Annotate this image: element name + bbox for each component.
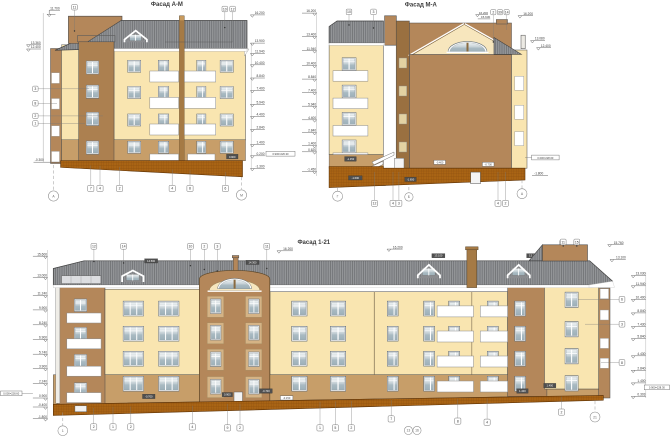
svg-text:0.000=228.60: 0.000=228.60: [537, 156, 553, 160]
svg-text:15: 15: [575, 240, 579, 244]
svg-text:М: М: [240, 193, 243, 197]
svg-text:11.940: 11.940: [255, 50, 265, 54]
svg-text:12.400: 12.400: [541, 44, 551, 48]
svg-text:11: 11: [73, 6, 77, 10]
svg-text:-1.450: -1.450: [307, 168, 316, 172]
svg-text:2: 2: [93, 425, 95, 429]
svg-text:3: 3: [34, 87, 36, 91]
svg-text:4.400: 4.400: [257, 113, 265, 117]
svg-text:Фасад А-М: Фасад А-М: [151, 2, 183, 8]
svg-text:12: 12: [373, 202, 377, 206]
svg-text:8: 8: [457, 419, 459, 423]
svg-text:16.200: 16.200: [393, 245, 403, 249]
svg-text:14.300: 14.300: [249, 260, 257, 264]
svg-text:Фасад 1-21: Фасад 1-21: [297, 240, 330, 246]
svg-text:-1.650: -1.650: [407, 177, 415, 181]
svg-text:5.940: 5.940: [257, 101, 265, 105]
svg-text:1: 1: [34, 122, 36, 126]
svg-text:-0.400: -0.400: [38, 403, 47, 407]
svg-text:16.200: 16.200: [283, 247, 293, 251]
svg-text:7: 7: [390, 417, 392, 421]
svg-text:1.400: 1.400: [547, 384, 554, 388]
svg-text:6: 6: [224, 187, 226, 191]
svg-text:8.840: 8.840: [637, 309, 645, 313]
svg-text:3: 3: [216, 245, 218, 249]
svg-text:3: 3: [373, 10, 375, 14]
svg-text:4: 4: [497, 202, 499, 206]
svg-text:-0.300: -0.300: [35, 158, 44, 162]
svg-text:2.840: 2.840: [637, 366, 645, 370]
svg-text:0.303: 0.303: [637, 393, 645, 397]
svg-text:-1.300: -1.300: [255, 165, 264, 169]
svg-text:14: 14: [122, 245, 126, 249]
svg-text:5.840: 5.840: [637, 335, 645, 339]
svg-text:13.080: 13.080: [535, 37, 545, 41]
svg-text:2: 2: [119, 187, 121, 191]
svg-text:0.900: 0.900: [39, 394, 47, 398]
svg-text:2: 2: [561, 410, 563, 414]
svg-text:2: 2: [492, 11, 494, 15]
svg-text:10: 10: [188, 245, 192, 249]
svg-text:0.900=226.30: 0.900=226.30: [273, 152, 289, 156]
svg-text:-0.700: -0.700: [262, 389, 270, 393]
svg-text:5.940: 5.940: [308, 102, 316, 106]
svg-text:13.400: 13.400: [306, 33, 316, 37]
svg-text:2: 2: [350, 426, 352, 430]
svg-text:0.900: 0.900: [229, 155, 236, 159]
svg-text:2: 2: [34, 114, 36, 118]
svg-text:4.430: 4.430: [637, 352, 645, 356]
svg-text:14.500: 14.500: [147, 259, 155, 263]
svg-text:14: 14: [505, 11, 509, 15]
svg-text:4: 4: [191, 425, 193, 429]
svg-text:0.900: 0.900: [224, 393, 231, 397]
svg-text:11.940: 11.940: [636, 282, 646, 286]
svg-text:1.400: 1.400: [637, 379, 645, 383]
svg-text:9.900: 9.900: [39, 306, 47, 310]
svg-text:2: 2: [130, 425, 132, 429]
svg-text:-1.600: -1.600: [352, 176, 360, 180]
svg-text:11.240: 11.240: [37, 292, 47, 296]
svg-text:10: 10: [223, 7, 227, 11]
svg-text:5: 5: [334, 426, 336, 430]
svg-text:15.600: 15.600: [37, 252, 47, 256]
svg-text:1.400: 1.400: [257, 141, 265, 145]
svg-text:8: 8: [34, 102, 36, 106]
svg-text:-1.450: -1.450: [347, 157, 355, 161]
svg-text:-0.150: -0.150: [283, 396, 291, 400]
svg-text:6: 6: [621, 298, 623, 302]
svg-text:0.000=228.60: 0.000=228.60: [3, 392, 19, 396]
svg-text:2: 2: [505, 202, 507, 206]
svg-text:13: 13: [407, 429, 411, 433]
svg-text:11: 11: [561, 240, 565, 244]
svg-text:10: 10: [347, 10, 351, 14]
svg-text:4: 4: [99, 187, 101, 191]
svg-text:8: 8: [621, 361, 623, 365]
svg-text:13.100: 13.100: [434, 254, 442, 258]
svg-text:Фасад М-А: Фасад М-А: [405, 2, 438, 8]
svg-text:7.430: 7.430: [637, 323, 645, 327]
svg-text:2.840: 2.840: [308, 129, 316, 133]
svg-text:4: 4: [171, 187, 173, 191]
svg-text:13.900: 13.900: [255, 39, 265, 43]
svg-text:12.400: 12.400: [31, 45, 41, 49]
svg-text:-1.800: -1.800: [38, 415, 47, 419]
svg-text:1: 1: [112, 425, 114, 429]
svg-text:2: 2: [203, 245, 205, 249]
svg-text:11.940: 11.940: [307, 47, 317, 51]
svg-text:13.000: 13.000: [37, 274, 47, 278]
svg-text:1.400: 1.400: [308, 142, 316, 146]
svg-text:8.840: 8.840: [308, 75, 316, 79]
svg-text:9: 9: [227, 426, 229, 430]
svg-text:1: 1: [319, 426, 321, 430]
svg-text:1.400: 1.400: [519, 389, 526, 393]
svg-text:16.200: 16.200: [523, 12, 533, 16]
svg-text:2.240: 2.240: [39, 380, 47, 384]
svg-text:12: 12: [231, 7, 235, 11]
svg-text:15.760: 15.760: [614, 241, 624, 245]
svg-text:-0.700: -0.700: [145, 395, 153, 399]
svg-text:-1.800: -1.800: [534, 171, 543, 175]
svg-text:8: 8: [189, 187, 191, 191]
svg-text:7.400: 7.400: [257, 87, 265, 91]
svg-text:15.630: 15.630: [481, 15, 491, 19]
svg-text:4: 4: [486, 421, 488, 425]
svg-text:13.100: 13.100: [616, 256, 626, 260]
svg-text:39: 39: [498, 11, 502, 15]
svg-text:7.400: 7.400: [308, 89, 316, 93]
svg-text:6.900: 6.900: [39, 335, 47, 339]
svg-text:0.200: 0.200: [257, 152, 265, 156]
svg-text:-0.400: -0.400: [436, 160, 444, 164]
svg-text:3: 3: [398, 202, 400, 206]
svg-text:0.900=228.30: 0.900=228.30: [649, 386, 665, 390]
svg-text:7: 7: [90, 187, 92, 191]
svg-text:8.240: 8.240: [39, 321, 47, 325]
svg-text:Г: Г: [337, 195, 339, 199]
svg-text:10.400: 10.400: [255, 61, 265, 65]
svg-text:16: 16: [415, 429, 419, 433]
svg-text:2: 2: [239, 426, 241, 430]
svg-text:3: 3: [621, 323, 623, 327]
svg-text:10.400: 10.400: [636, 296, 646, 300]
svg-text:10.400: 10.400: [306, 62, 316, 66]
svg-text:12: 12: [92, 245, 96, 249]
svg-text:-0.700: -0.700: [485, 162, 493, 166]
svg-text:11.700: 11.700: [50, 6, 60, 10]
svg-text:2.840: 2.840: [257, 126, 265, 130]
svg-text:0.620: 0.620: [308, 148, 316, 152]
svg-text:4: 4: [392, 202, 394, 206]
svg-text:11: 11: [265, 245, 269, 249]
svg-text:13.030: 13.030: [636, 272, 646, 276]
svg-text:8.840: 8.840: [257, 74, 265, 78]
svg-text:5.740: 5.740: [39, 350, 47, 354]
svg-text:16.200: 16.200: [255, 11, 265, 15]
svg-text:21: 21: [593, 415, 597, 419]
svg-text:3.900: 3.900: [39, 365, 47, 369]
svg-text:1: 1: [62, 429, 64, 433]
svg-text:16.200: 16.200: [306, 9, 316, 13]
svg-text:4.400: 4.400: [308, 116, 316, 120]
